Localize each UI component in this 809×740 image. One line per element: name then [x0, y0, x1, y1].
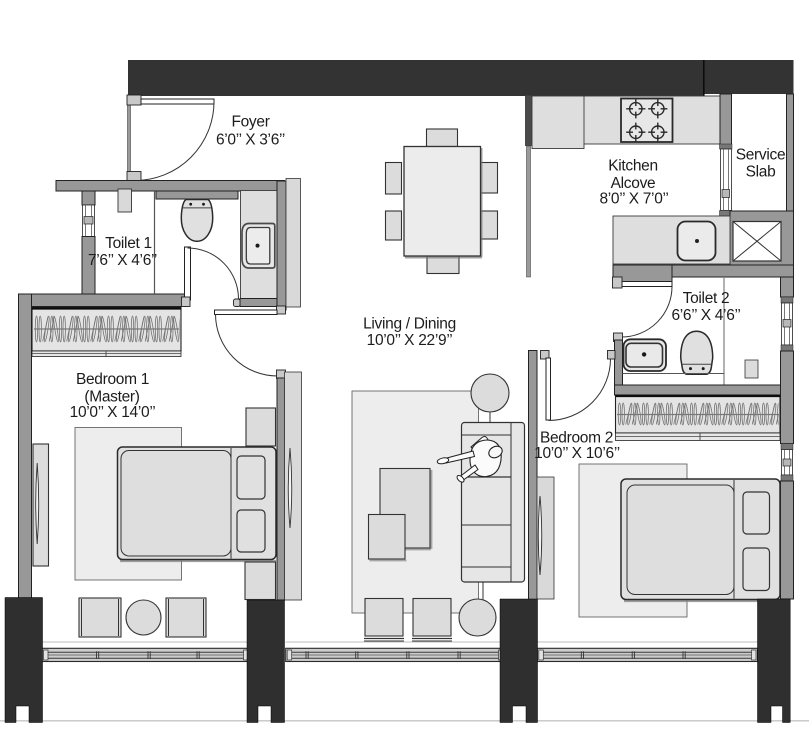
svg-text:10’0’’ X 22’9’’: 10’0’’ X 22’9’’ — [367, 332, 453, 349]
svg-text:Service: Service — [736, 147, 786, 164]
svg-text:(Master): (Master) — [84, 389, 139, 406]
svg-text:Toilet 2: Toilet 2 — [683, 290, 730, 307]
svg-text:Kitchen: Kitchen — [608, 158, 658, 175]
svg-text:Alcove: Alcove — [611, 175, 656, 192]
svg-text:10’0’’ X 14’0’’: 10’0’’ X 14’0’’ — [70, 404, 156, 421]
svg-text:Slab: Slab — [746, 164, 776, 181]
svg-text:10’0’’ X 10’6’’: 10’0’’ X 10’6’’ — [534, 445, 620, 462]
svg-text:6’6’’ X 4’6’’: 6’6’’ X 4’6’’ — [671, 307, 740, 324]
svg-text:Toilet 1: Toilet 1 — [105, 235, 152, 252]
svg-text:Bedroom 2: Bedroom 2 — [540, 430, 613, 447]
svg-text:Foyer: Foyer — [231, 114, 269, 131]
svg-text:8’0’’ X 7’0’’: 8’0’’ X 7’0’’ — [599, 191, 668, 208]
svg-text:Living / Dining: Living / Dining — [363, 316, 456, 333]
svg-text:7’6’’ X 4’6’’: 7’6’’ X 4’6’’ — [88, 252, 157, 269]
svg-text:6’0’’ X 3’6’’: 6’0’’ X 3’6’’ — [216, 132, 285, 149]
svg-text:Bedroom 1: Bedroom 1 — [76, 371, 149, 388]
